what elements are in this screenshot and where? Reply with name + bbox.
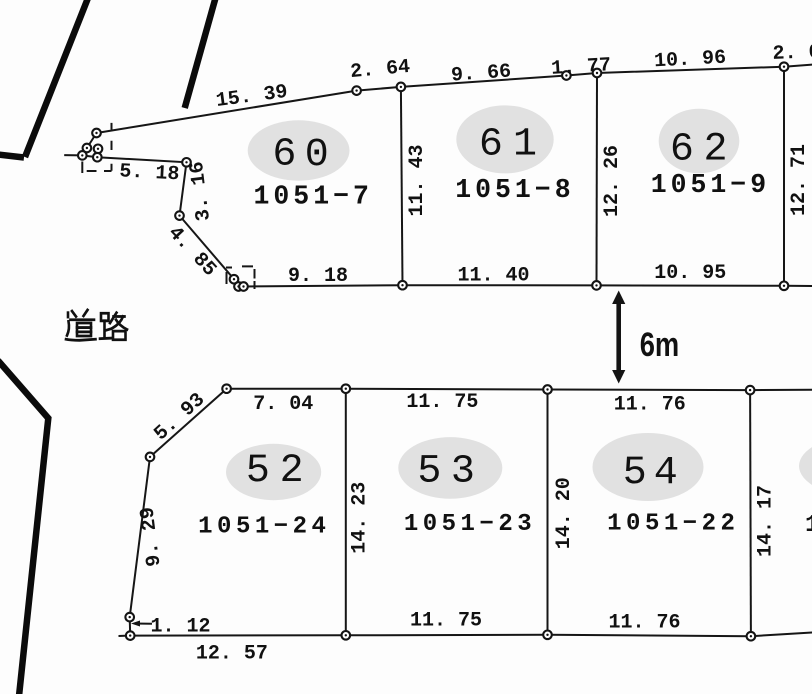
svg-text:1. 77: 1. 77 [550, 54, 611, 81]
svg-text:6: 6 [272, 133, 296, 178]
svg-text:5: 5 [417, 450, 441, 495]
svg-text:14. 20: 14. 20 [553, 477, 576, 549]
svg-text:11. 76: 11. 76 [614, 394, 686, 417]
svg-text:6m: 6m [640, 326, 680, 364]
svg-text:5. 18: 5. 18 [119, 160, 180, 186]
svg-text:5: 5 [623, 451, 647, 496]
svg-text:10: 10 [805, 512, 812, 539]
svg-text:9. 18: 9. 18 [288, 265, 348, 288]
svg-text:11. 76: 11. 76 [608, 612, 680, 635]
svg-text:1051−23: 1051−23 [404, 511, 536, 538]
svg-text:12. 26: 12. 26 [601, 145, 624, 217]
svg-text:2: 2 [280, 449, 304, 494]
svg-text:0: 0 [305, 133, 329, 178]
svg-text:5: 5 [246, 449, 270, 494]
svg-text:1051−9: 1051−9 [651, 170, 770, 200]
svg-text:1: 1 [513, 122, 537, 167]
svg-text:10. 95: 10. 95 [654, 262, 726, 285]
svg-text:11. 40: 11. 40 [457, 265, 529, 288]
svg-text:10. 96: 10. 96 [654, 47, 727, 74]
svg-text:4: 4 [654, 451, 678, 496]
svg-text:6: 6 [670, 127, 694, 172]
svg-text:1051−22: 1051−22 [607, 511, 739, 538]
svg-text:11. 75: 11. 75 [410, 610, 482, 633]
svg-text:3: 3 [451, 450, 475, 495]
svg-text:1051−24: 1051−24 [198, 513, 330, 540]
svg-text:1051−8: 1051−8 [455, 175, 574, 205]
svg-text:14. 23: 14. 23 [348, 482, 371, 554]
svg-text:1051−7: 1051−7 [253, 181, 372, 211]
svg-text:9. 66: 9. 66 [450, 60, 511, 87]
svg-text:12. 57: 12. 57 [196, 642, 268, 665]
svg-text:12. 71: 12. 71 [788, 144, 811, 216]
svg-text:11. 43: 11. 43 [406, 144, 429, 216]
svg-text:7. 04: 7. 04 [253, 393, 313, 416]
svg-text:2. 0: 2. 0 [772, 41, 812, 66]
svg-text:1. 12: 1. 12 [150, 616, 210, 639]
svg-text:6: 6 [479, 122, 503, 167]
svg-text:2: 2 [703, 127, 727, 172]
svg-text:11. 75: 11. 75 [406, 391, 478, 414]
svg-text:14. 17: 14. 17 [754, 485, 777, 557]
